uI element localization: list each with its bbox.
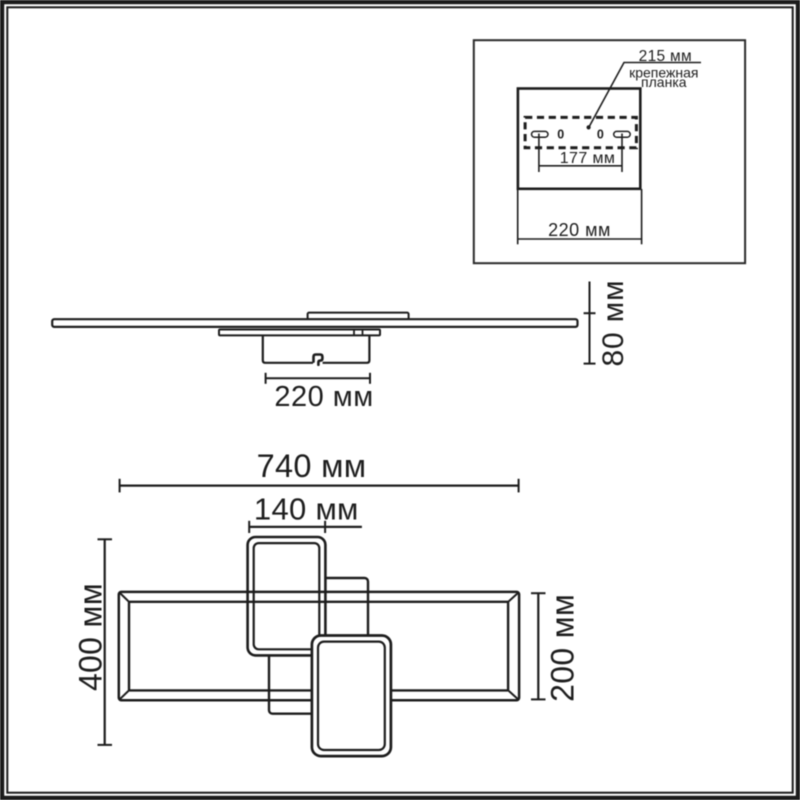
svg-text:0: 0 — [597, 127, 604, 141]
svg-text:215 мм: 215 мм — [639, 48, 692, 65]
svg-text:80 мм: 80 мм — [597, 280, 630, 367]
svg-text:177 мм: 177 мм — [560, 150, 616, 167]
svg-text:740 мм: 740 мм — [257, 448, 367, 484]
svg-text:220 мм: 220 мм — [274, 381, 373, 413]
svg-text:планка: планка — [641, 74, 687, 90]
svg-text:200 мм: 200 мм — [545, 594, 581, 702]
svg-text:0: 0 — [557, 127, 564, 141]
svg-text:220 мм: 220 мм — [548, 220, 611, 240]
svg-text:140 мм: 140 мм — [254, 492, 359, 527]
svg-text:400 мм: 400 мм — [73, 583, 109, 691]
